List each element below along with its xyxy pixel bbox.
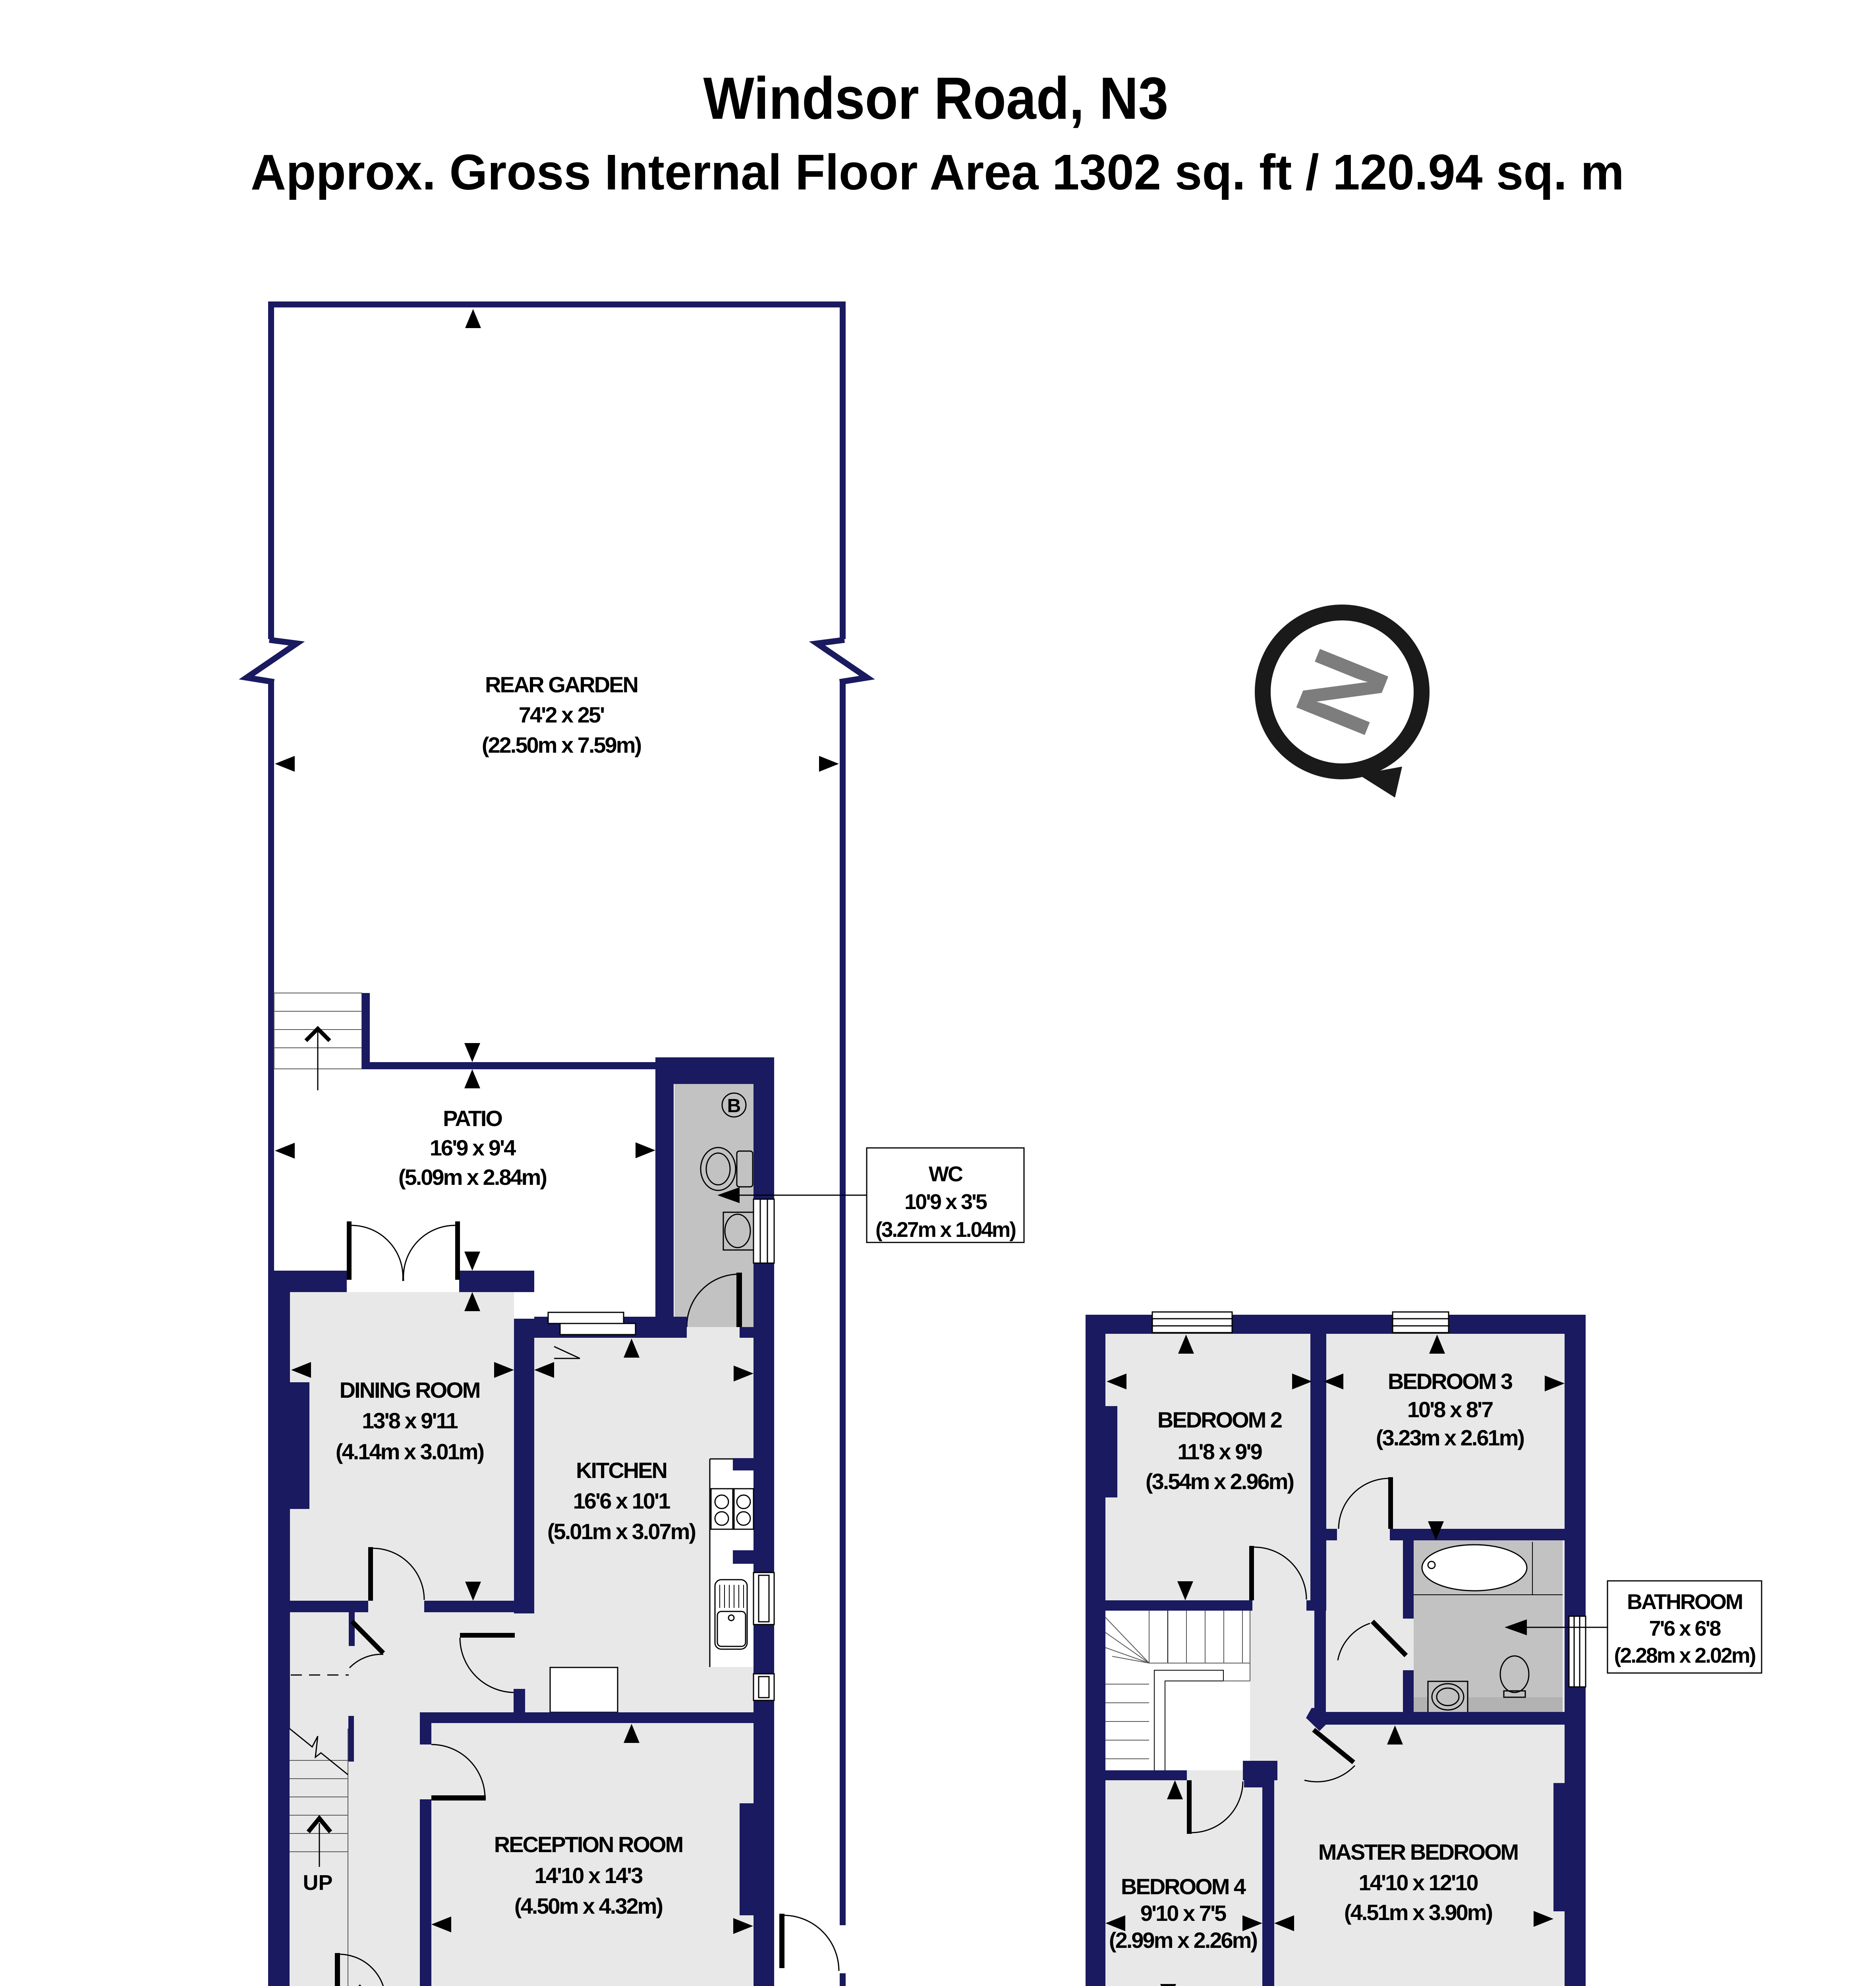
- svg-text:(3.23m x 2.61m): (3.23m x 2.61m): [1376, 1425, 1524, 1450]
- svg-text:(4.50m x 4.32m): (4.50m x 4.32m): [514, 1893, 662, 1918]
- svg-text:(4.51m x 3.90m): (4.51m x 3.90m): [1344, 1900, 1492, 1925]
- svg-text:MASTER BEDROOM: MASTER BEDROOM: [1318, 1839, 1518, 1864]
- svg-text:RECEPTION ROOM: RECEPTION ROOM: [494, 1832, 682, 1857]
- svg-text:16'6 x 10'1: 16'6 x 10'1: [573, 1488, 670, 1513]
- svg-text:(2.99m x 2.26m): (2.99m x 2.26m): [1109, 1928, 1257, 1953]
- svg-text:Approx. Gross Internal Floor A: Approx. Gross Internal Floor Area 1302 s…: [251, 144, 1624, 200]
- svg-text:DINING ROOM: DINING ROOM: [340, 1377, 480, 1403]
- svg-text:7'6 x 6'8: 7'6 x 6'8: [1649, 1617, 1721, 1640]
- svg-text:(4.14m x 3.01m): (4.14m x 3.01m): [336, 1439, 483, 1464]
- svg-text:13'8 x 9'11: 13'8 x 9'11: [362, 1408, 458, 1433]
- svg-text:10'8 x 8'7: 10'8 x 8'7: [1407, 1397, 1493, 1422]
- svg-text:Windsor Road, N3: Windsor Road, N3: [703, 65, 1169, 131]
- svg-text:14'10 x 12'10: 14'10 x 12'10: [1358, 1870, 1478, 1895]
- svg-text:WC: WC: [929, 1162, 963, 1186]
- svg-text:(5.01m x 3.07m): (5.01m x 3.07m): [547, 1519, 695, 1544]
- svg-text:74'2 x 25': 74'2 x 25': [519, 702, 604, 727]
- svg-text:16'9 x 9'4: 16'9 x 9'4: [430, 1135, 516, 1160]
- svg-text:10'9 x 3'5: 10'9 x 3'5: [904, 1190, 987, 1214]
- svg-text:UP: UP: [303, 1871, 332, 1895]
- svg-text:BEDROOM 3: BEDROOM 3: [1388, 1369, 1513, 1394]
- svg-text:B: B: [727, 1095, 741, 1117]
- svg-text:11'8 x 9'9: 11'8 x 9'9: [1177, 1439, 1262, 1464]
- svg-text:BEDROOM 2: BEDROOM 2: [1157, 1407, 1282, 1432]
- svg-text:14'10 x 14'3: 14'10 x 14'3: [535, 1863, 643, 1888]
- svg-text:9'10 x 7'5: 9'10 x 7'5: [1140, 1901, 1226, 1926]
- svg-text:KITCHEN: KITCHEN: [576, 1458, 667, 1483]
- svg-text:(3.54m x 2.96m): (3.54m x 2.96m): [1146, 1469, 1293, 1494]
- svg-text:(22.50m x 7.59m): (22.50m x 7.59m): [482, 732, 641, 757]
- svg-text:(2.28m x 2.02m): (2.28m x 2.02m): [1614, 1644, 1756, 1667]
- svg-text:REAR GARDEN: REAR GARDEN: [485, 672, 638, 697]
- svg-text:(5.09m x 2.84m): (5.09m x 2.84m): [398, 1165, 546, 1190]
- svg-text:PATIO: PATIO: [443, 1106, 502, 1131]
- svg-text:BATHROOM: BATHROOM: [1627, 1590, 1742, 1614]
- svg-text:BEDROOM 4: BEDROOM 4: [1121, 1874, 1246, 1899]
- svg-text:(3.27m x 1.04m): (3.27m x 1.04m): [875, 1218, 1016, 1242]
